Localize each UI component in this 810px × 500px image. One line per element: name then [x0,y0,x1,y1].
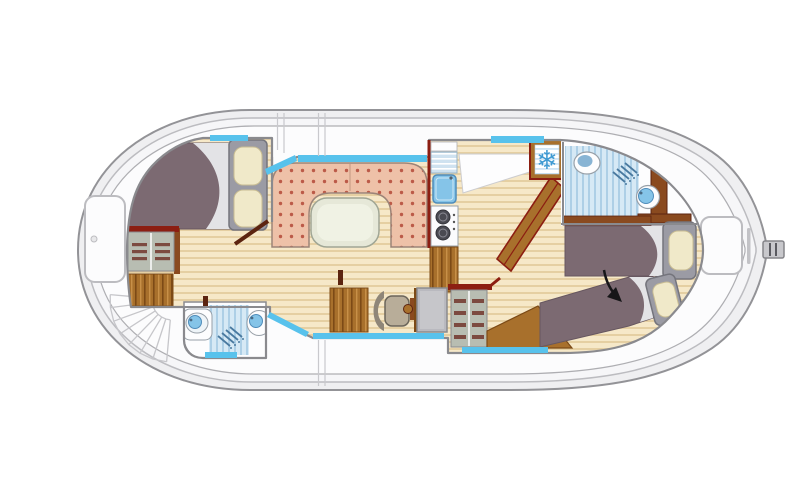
aft-wardrobe [126,226,180,274]
window-aft-cabin [210,135,248,141]
galley-faucet [449,176,452,179]
helm-console [414,288,447,332]
wall-post [338,270,343,285]
pillow [234,190,262,227]
galley-counter [431,142,457,151]
window-bow-cabin-bottom [462,347,548,353]
bow-bed-port [565,222,696,279]
aft-bathroom [183,296,271,358]
pillow [669,231,693,270]
fwd-washbasin [637,186,660,209]
boat-floor-plan: ❄ [0,0,810,500]
bow-flagpole-socket [747,228,751,264]
storage-cabinet [330,288,368,332]
saloon [272,163,427,247]
bow-deck-hatch [701,217,742,274]
aft-washbasin [183,309,212,340]
stern-locker-hatch [85,196,125,282]
window-aft-bathroom [205,352,237,358]
freezer-snowflake-icon: ❄ [536,146,558,176]
bow-cleat [763,241,784,258]
fwd-toilet [574,152,600,174]
galley-stove [431,206,458,246]
galley-drainer [431,152,457,173]
fridge-freezer: ❄ [530,140,564,179]
dinette-table [311,198,379,247]
window-galley-top [491,136,544,143]
aft-shower-floor [209,305,249,355]
window-saloon-bottom [313,333,444,339]
window-saloon-top [298,155,427,162]
pillow [234,147,262,185]
